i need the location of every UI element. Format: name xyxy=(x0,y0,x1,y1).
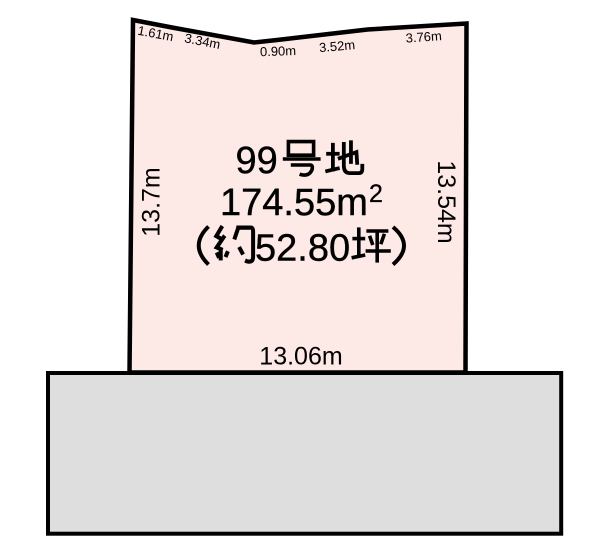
svg-text:3.76m: 3.76m xyxy=(405,28,442,45)
svg-text:2: 2 xyxy=(369,180,383,208)
svg-text:174.55m: 174.55m xyxy=(220,182,368,224)
svg-text:13.7m: 13.7m xyxy=(138,167,166,236)
svg-text:3.52m: 3.52m xyxy=(318,37,355,55)
svg-text:99: 99 xyxy=(236,140,278,182)
svg-text:13.06m: 13.06m xyxy=(259,343,342,371)
svg-text:13.54m: 13.54m xyxy=(432,160,460,243)
svg-text:52.80: 52.80 xyxy=(255,228,350,270)
svg-text:0.90m: 0.90m xyxy=(260,43,297,59)
